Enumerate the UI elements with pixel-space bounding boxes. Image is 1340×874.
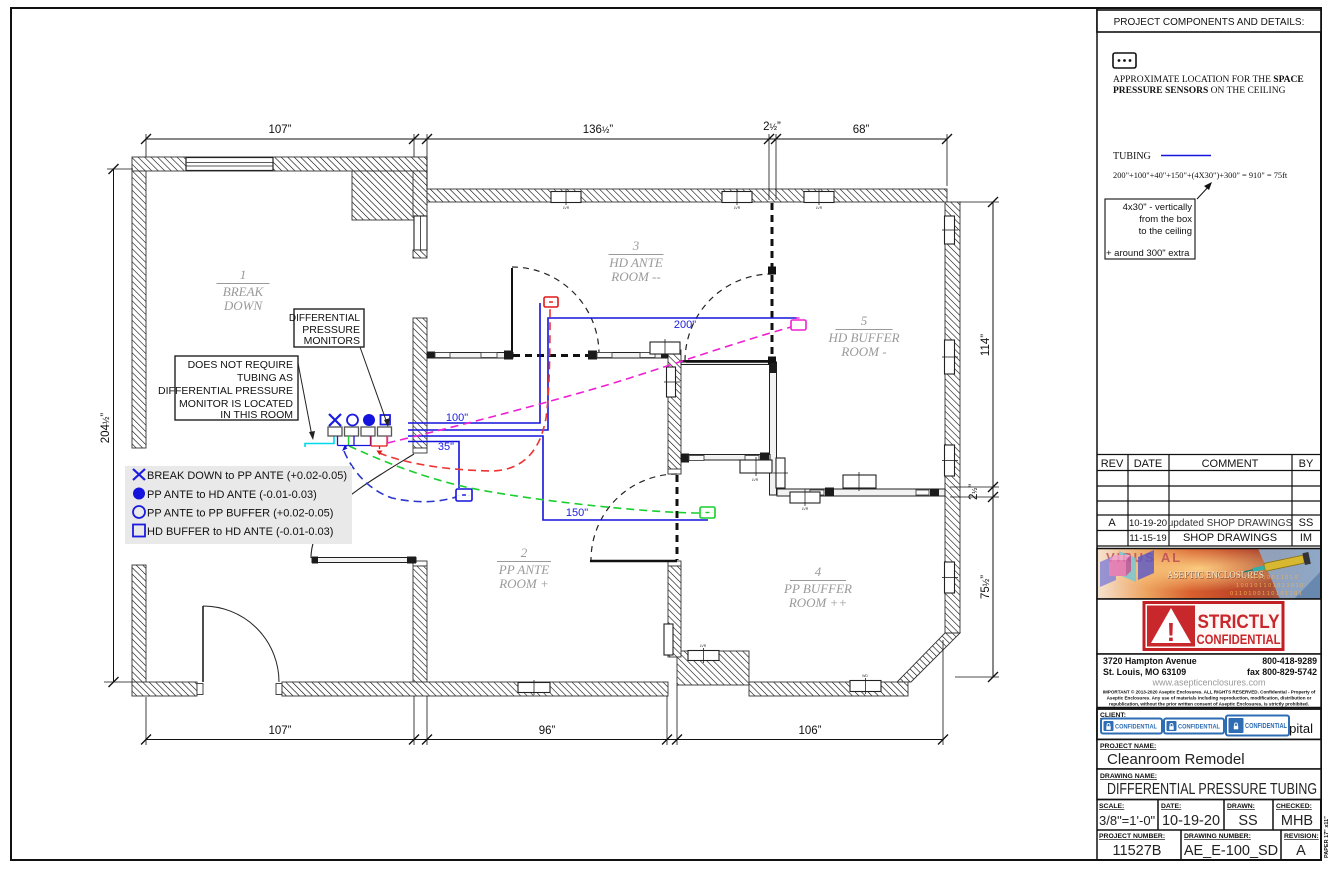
svg-text:BREAK: BREAK (223, 284, 265, 299)
svg-text:11527B: 11527B (1113, 843, 1162, 859)
svg-text:3: 3 (632, 238, 640, 253)
svg-text:MONITORS: MONITORS (304, 335, 360, 347)
svg-text:STRICTLY: STRICTLY (1198, 611, 1280, 633)
svg-text:DOWN: DOWN (223, 298, 264, 313)
svg-text:200": 200" (674, 319, 696, 331)
svg-text:IM: IM (1300, 532, 1312, 544)
svg-text:Cleanroom Remodel: Cleanroom Remodel (1107, 751, 1245, 768)
svg-text:SS: SS (1299, 517, 1314, 529)
svg-text:LVR: LVR (734, 206, 741, 210)
svg-text:4: 4 (815, 564, 822, 579)
svg-text:ROOM -: ROOM - (840, 344, 886, 359)
svg-text:HD BUFFER to HD ANTE (-0.01-0.: HD BUFFER to HD ANTE (-0.01-0.03) (147, 526, 333, 538)
svg-text:150": 150" (566, 507, 588, 519)
svg-text:BY: BY (1299, 458, 1314, 470)
svg-text:5: 5 (861, 313, 868, 328)
svg-text:SS: SS (1238, 813, 1257, 829)
svg-text:1 0 0 1 0 1 1 0 1 0 1 1 0 1 0: 1 0 0 1 0 1 1 0 1 0 1 1 0 1 0 (1236, 583, 1303, 589)
svg-text:75½”: 75½” (980, 575, 992, 599)
svg-text:www.asepticenclosures.com: www.asepticenclosures.com (1151, 678, 1265, 688)
svg-text:DRAWING NUMBER:: DRAWING NUMBER: (1184, 833, 1251, 840)
svg-text:0 1 1 0 1 0 0 1 1 0 1 0 1 1 0: 0 1 1 0 1 0 0 1 1 0 1 0 1 1 0 1 (1230, 591, 1302, 597)
svg-text:A: A (1296, 843, 1306, 859)
svg-text:fax 800-829-5742: fax 800-829-5742 (1247, 667, 1317, 677)
svg-text:DRAWING NAME:: DRAWING NAME: (1100, 773, 1157, 780)
svg-text:MHB: MHB (1281, 813, 1313, 829)
svg-text:+ around 300" extra: + around 300" extra (1106, 248, 1190, 259)
svg-text:HD BUFFER: HD BUFFER (827, 330, 899, 345)
svg-text:TUBING: TUBING (1113, 151, 1151, 162)
svg-text:3720 Hampton Avenue: 3720 Hampton Avenue (1103, 656, 1197, 666)
svg-text:PROJECT NUMBER:: PROJECT NUMBER: (1099, 833, 1165, 840)
svg-text:100": 100" (446, 412, 468, 424)
svg-text:136½”: 136½” (583, 124, 614, 136)
svg-text:DATE:: DATE: (1161, 803, 1181, 810)
svg-text:St. Louis, MO 63109: St. Louis, MO 63109 (1103, 667, 1186, 677)
svg-text:TUBING AS: TUBING AS (237, 372, 293, 384)
svg-text:CONFIDENTIAL: CONFIDENTIAL (1178, 723, 1220, 730)
svg-text:PP ANTE: PP ANTE (498, 562, 550, 577)
svg-text:4x30" - vertically: 4x30" - vertically (1123, 202, 1193, 213)
svg-text:DRAWN:: DRAWN: (1227, 803, 1255, 810)
svg-text:96”: 96” (539, 725, 556, 737)
svg-text:SCALE:: SCALE: (1099, 803, 1124, 810)
svg-text:CHECKED:: CHECKED: (1276, 803, 1312, 810)
svg-text:68”: 68” (853, 124, 870, 136)
svg-text:DIFFERENTIAL PRESSURE TUBING: DIFFERENTIAL PRESSURE TUBING (1107, 781, 1317, 798)
svg-text:LVR: LVR (700, 644, 707, 648)
svg-text:ROOM +: ROOM + (498, 576, 549, 591)
svg-text:1: 1 (240, 267, 247, 282)
svg-text:pital: pital (1289, 721, 1313, 736)
svg-text:republication, without the pri: republication, without the prior written… (1109, 702, 1309, 707)
svg-text:LVR: LVR (802, 507, 809, 511)
svg-text:to the ceiling: to the ceiling (1139, 226, 1192, 237)
svg-text:2: 2 (521, 545, 528, 560)
svg-text:11-15-19: 11-15-19 (1129, 533, 1166, 544)
svg-text:WD: WD (862, 674, 868, 678)
svg-text:PP BUFFER: PP BUFFER (783, 581, 852, 596)
svg-text:HD ANTE: HD ANTE (608, 255, 663, 270)
svg-text:DOES NOT REQUIRE: DOES NOT REQUIRE (188, 359, 293, 371)
svg-text:106”: 106” (798, 725, 821, 737)
svg-text:PRESSURE SENSORS ON THE CEILIN: PRESSURE SENSORS ON THE CEILING (1113, 86, 1286, 96)
svg-text:SHOP DRAWINGS: SHOP DRAWINGS (1183, 532, 1277, 544)
svg-text:10-19-20: 10-19-20 (1162, 813, 1220, 829)
svg-text:A: A (1108, 517, 1116, 529)
svg-text:107”: 107” (268, 124, 291, 136)
svg-text:CONFIDENTIAL: CONFIDENTIAL (1197, 632, 1281, 647)
svg-text:PP ANTE to HD ANTE (-0.01-0.03: PP ANTE to HD ANTE (-0.01-0.03) (147, 489, 317, 501)
svg-text:AE_E-100_SD: AE_E-100_SD (1184, 843, 1278, 859)
svg-text:10-19-20: 10-19-20 (1129, 518, 1167, 529)
svg-text:APPROXIMATE LOCATION FOR THE S: APPROXIMATE LOCATION FOR THE SPACE (1113, 75, 1304, 85)
svg-text:114”: 114” (980, 334, 992, 356)
svg-text:REVISION:: REVISION: (1284, 833, 1319, 840)
svg-text:PROJECT COMPONENTS AND DETAILS: PROJECT COMPONENTS AND DETAILS: (1114, 17, 1305, 28)
svg-text:DATE: DATE (1134, 458, 1163, 470)
svg-text:REV: REV (1101, 458, 1124, 470)
svg-text:DIFFERENTIAL PRESSURE: DIFFERENTIAL PRESSURE (158, 385, 293, 397)
svg-text:from the box: from the box (1139, 214, 1192, 225)
svg-text:CONFIDENTIAL: CONFIDENTIAL (1115, 723, 1157, 730)
svg-text:!: ! (1167, 617, 1176, 647)
svg-text:800-418-9289: 800-418-9289 (1262, 656, 1317, 666)
svg-text:PROJECT NAME:: PROJECT NAME: (1100, 743, 1156, 750)
svg-text:200"+100"+40"+150"+(4X30")+300: 200"+100"+40"+150"+(4X30")+300" = 910" =… (1113, 171, 1288, 180)
svg-text:ROOM ++: ROOM ++ (788, 595, 847, 610)
svg-text:2½”: 2½” (763, 121, 781, 133)
svg-text:updated SHOP DRAWINGS: updated SHOP DRAWINGS (1168, 518, 1293, 529)
svg-text:IMPORTANT © 2013-2020 Aseptic: IMPORTANT © 2013-2020 Aseptic Enclosures… (1103, 689, 1316, 695)
svg-text:CONFIDENTIAL: CONFIDENTIAL (1245, 721, 1287, 730)
svg-text:3/8"=1'-0": 3/8"=1'-0" (1099, 813, 1156, 828)
svg-text:BREAK DOWN to PP ANTE (+0.02-0: BREAK DOWN to PP ANTE (+0.02-0.05) (147, 470, 347, 482)
svg-text:Aseptic Enclosures. Any use of: Aseptic Enclosures. Any use of materials… (1107, 696, 1312, 701)
svg-text:35": 35" (438, 441, 454, 453)
svg-text:LVR: LVR (563, 206, 570, 210)
svg-text:LVR: LVR (752, 478, 759, 482)
svg-text:PAPER 17" x11": PAPER 17" x11" (1324, 816, 1330, 858)
svg-text:1 0 1 0 1 0 0 1 1 0 1 0: 1 0 1 0 1 0 0 1 1 0 1 0 (1244, 575, 1298, 581)
svg-text:PP ANTE to PP BUFFER (+0.02-0.: PP ANTE to PP BUFFER (+0.02-0.05) (147, 508, 333, 520)
svg-text:IN THIS ROOM: IN THIS ROOM (220, 409, 293, 421)
svg-text:LVR: LVR (816, 206, 823, 210)
svg-text:204½”: 204½” (100, 413, 112, 444)
svg-text:ROOM --: ROOM -- (610, 269, 660, 284)
svg-text:107”: 107” (268, 725, 291, 737)
svg-text:DIFFERENTIAL: DIFFERENTIAL (289, 313, 361, 324)
svg-text:COMMENT: COMMENT (1202, 458, 1259, 470)
